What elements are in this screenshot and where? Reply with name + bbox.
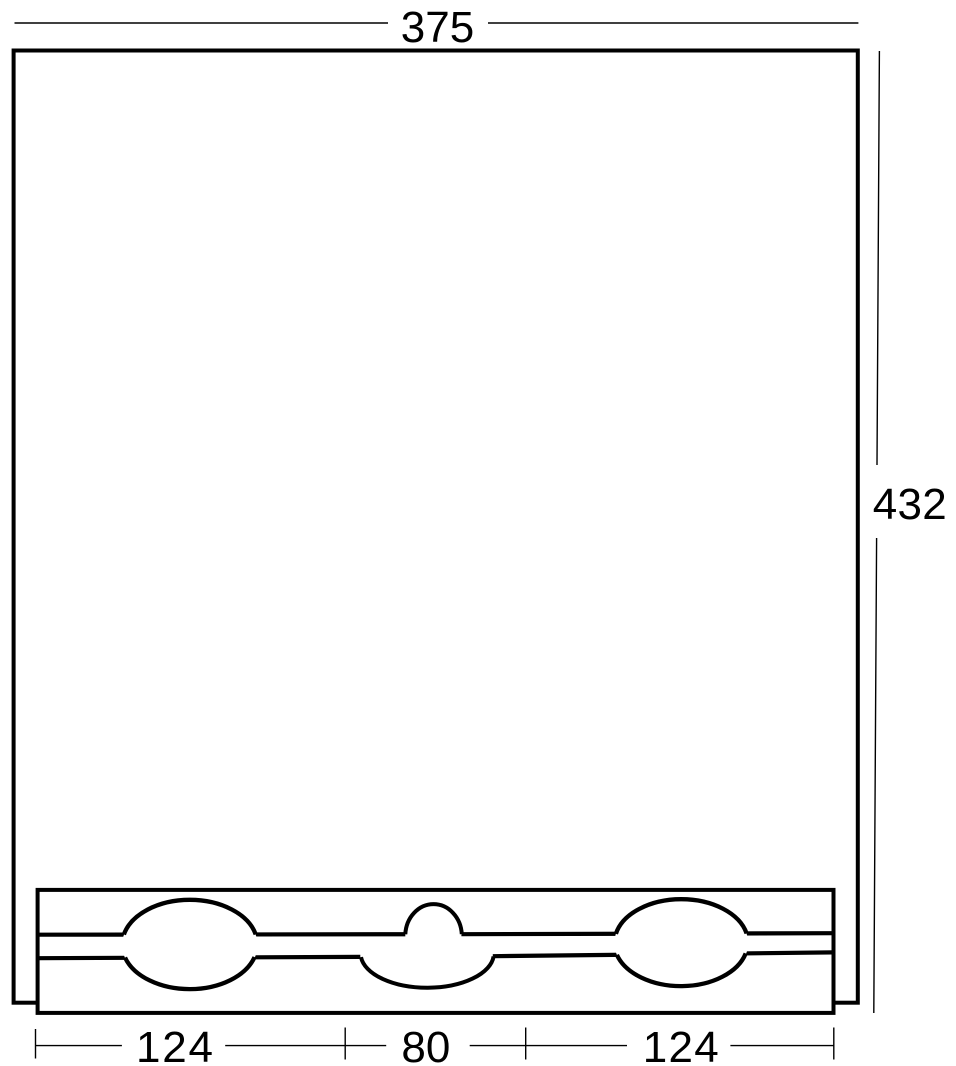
svg-text:80: 80	[401, 1023, 450, 1066]
svg-text:124: 124	[136, 1023, 213, 1066]
svg-text:432: 432	[873, 480, 947, 529]
svg-text:375: 375	[401, 3, 474, 52]
svg-text:124: 124	[643, 1023, 719, 1066]
